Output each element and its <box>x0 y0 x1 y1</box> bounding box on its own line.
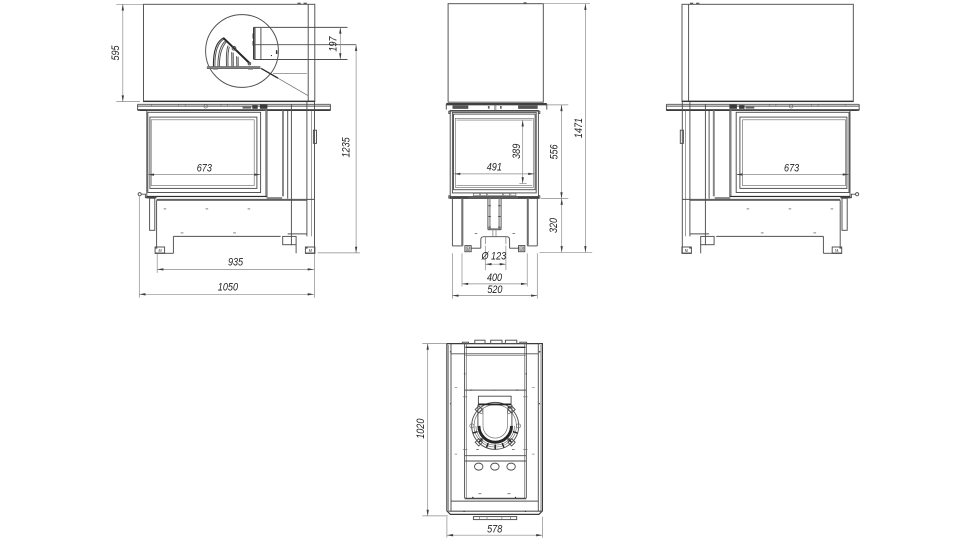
svg-text:673: 673 <box>197 163 213 175</box>
svg-text:389: 389 <box>511 143 523 159</box>
svg-text:520: 520 <box>487 284 503 296</box>
svg-text:1050: 1050 <box>218 282 239 294</box>
svg-text:M: M <box>520 247 523 251</box>
svg-text:1235: 1235 <box>341 137 353 158</box>
svg-text:556: 556 <box>549 144 561 160</box>
svg-text:320: 320 <box>548 218 560 234</box>
svg-text:673: 673 <box>784 163 800 175</box>
svg-text:400: 400 <box>487 273 503 285</box>
svg-text:578: 578 <box>487 524 503 536</box>
svg-text:935: 935 <box>228 257 244 269</box>
svg-text:1020: 1020 <box>415 418 427 439</box>
svg-text:Ø 123: Ø 123 <box>481 251 507 263</box>
svg-text:1471: 1471 <box>573 118 585 138</box>
svg-text:595: 595 <box>111 45 123 61</box>
svg-text:M: M <box>467 247 470 251</box>
svg-text:197: 197 <box>328 36 340 52</box>
svg-text:491: 491 <box>487 162 502 174</box>
